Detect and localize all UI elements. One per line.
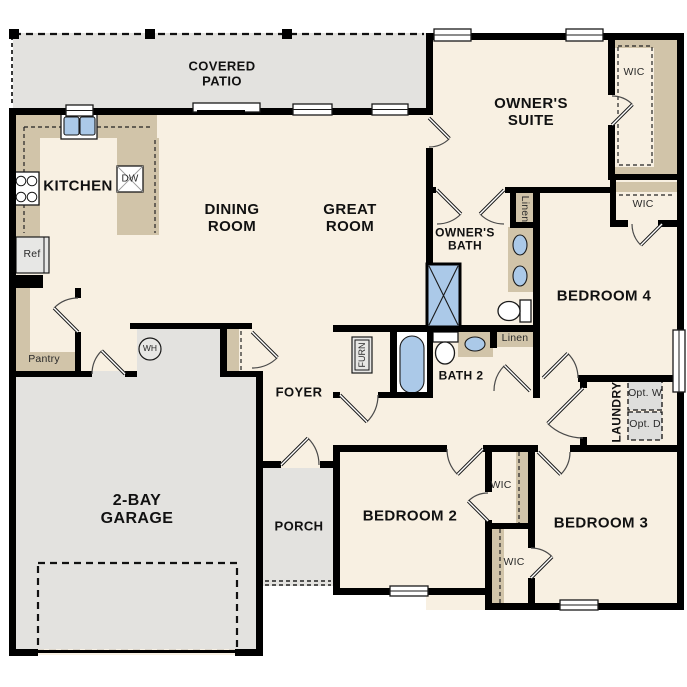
label-covered-patio: COVERED PATIO xyxy=(174,59,270,88)
shower xyxy=(427,264,460,327)
label-optional-dryer: Opt. D xyxy=(628,419,662,431)
label-bedroom-3: BEDROOM 3 xyxy=(554,516,648,533)
toilet-owners-bath xyxy=(498,300,531,322)
range xyxy=(14,172,39,205)
label-kitchen: KITCHEN xyxy=(43,179,112,196)
label-furnace: FURN xyxy=(357,343,367,368)
kitchen-sink xyxy=(61,114,97,139)
label-refrigerator: Ref xyxy=(24,249,41,261)
label-porch: PORCH xyxy=(275,520,324,535)
label-linen-hall: Linen xyxy=(518,196,530,223)
label-great-room: GREAT ROOM xyxy=(304,202,396,236)
bathtub xyxy=(397,332,427,398)
label-water-heater: WH xyxy=(143,344,157,354)
label-garage: 2-BAY GARAGE xyxy=(85,492,189,528)
label-optional-washer: Opt. W xyxy=(628,388,662,400)
label-owners-suite: OWNER'S SUITE xyxy=(479,96,583,130)
label-pantry: Pantry xyxy=(28,354,60,366)
label-wic-bedroom4: WIC xyxy=(632,199,653,211)
floor-plan: COVERED PATIO KITCHEN DINING ROOM GREAT … xyxy=(0,0,687,687)
label-wic-owner: WIC xyxy=(623,67,644,79)
label-dining-room: DINING ROOM xyxy=(186,202,278,236)
label-bedroom-2: BEDROOM 2 xyxy=(363,509,457,526)
label-bedroom-4: BEDROOM 4 xyxy=(557,289,651,306)
label-bath-2: BATH 2 xyxy=(437,369,485,382)
floorplan-drawing xyxy=(0,0,687,687)
label-linen-bath2: Linen xyxy=(502,333,529,345)
label-owners-bath: OWNER'S BATH xyxy=(423,227,507,254)
label-laundry: LAUNDRY xyxy=(610,381,623,442)
label-foyer: FOYER xyxy=(276,386,323,401)
label-dishwasher: DW xyxy=(121,173,138,184)
sink-bath2 xyxy=(465,337,485,351)
label-wic-bedroom2: WIC xyxy=(490,480,511,492)
label-wic-bedroom3: WIC xyxy=(503,557,524,569)
